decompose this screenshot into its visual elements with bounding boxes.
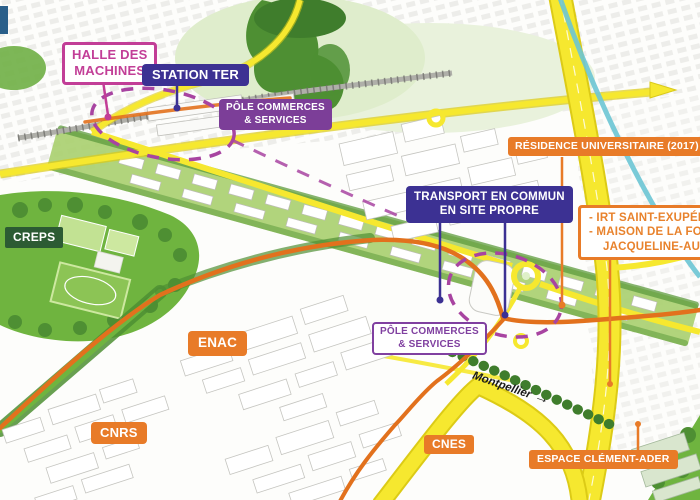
label-line: PÔLE COMMERCES [226,102,325,115]
label-line: & SERVICES [226,115,325,128]
label-line: PÔLE COMMERCES [380,326,479,339]
label-enac: ENAC [188,331,247,356]
halle-dot [105,114,112,121]
label-line: - MAISON DE LA FORMATION [589,225,700,239]
label-pole-commerces-top: PÔLE COMMERCES & SERVICES [219,99,332,130]
enac-campus-buildings [177,285,408,446]
label-line: & SERVICES [380,339,479,352]
transport-dot-west [437,297,444,304]
label-cnes: CNES [424,435,474,454]
label-espace-clement-ader: ESPACE CLÉMENT-ADER [529,450,678,469]
label-line: TRANSPORT EN COMMUN [414,190,565,204]
label-line: - IRT SAINT-EXUPÉRY [589,211,700,225]
irt-dot [607,381,613,387]
corner-mark [0,6,8,34]
transport-dot-east [502,312,509,319]
label-residence-universitaire: RÉSIDENCE UNIVERSITAIRE (2017) [508,137,700,156]
station-dot [174,105,181,112]
label-line: JACQUELINE-AURIOL [589,240,700,254]
cnes-campus-buildings [222,396,412,500]
label-pole-commerces-bottom: PÔLE COMMERCES & SERVICES [372,322,487,355]
label-line: EN SITE PROPRE [414,204,565,218]
label-cnrs: CNRS [91,422,147,444]
label-line: MACHINES [72,63,147,79]
espace-dot [635,421,641,427]
residence-dot [559,302,566,309]
label-irt-maison-formation: - IRT SAINT-EXUPÉRY - MAISON DE LA FORMA… [578,205,700,260]
label-creps: CREPS [5,227,63,248]
urban-planning-map: HALLE DES MACHINES STATION TER PÔLE COMM… [0,0,700,500]
montpellier-road [380,386,580,500]
label-transport-en-commun: TRANSPORT EN COMMUN EN SITE PROPRE [406,186,573,223]
label-station-ter: STATION TER [142,64,249,86]
label-line: HALLE DES [72,47,147,63]
